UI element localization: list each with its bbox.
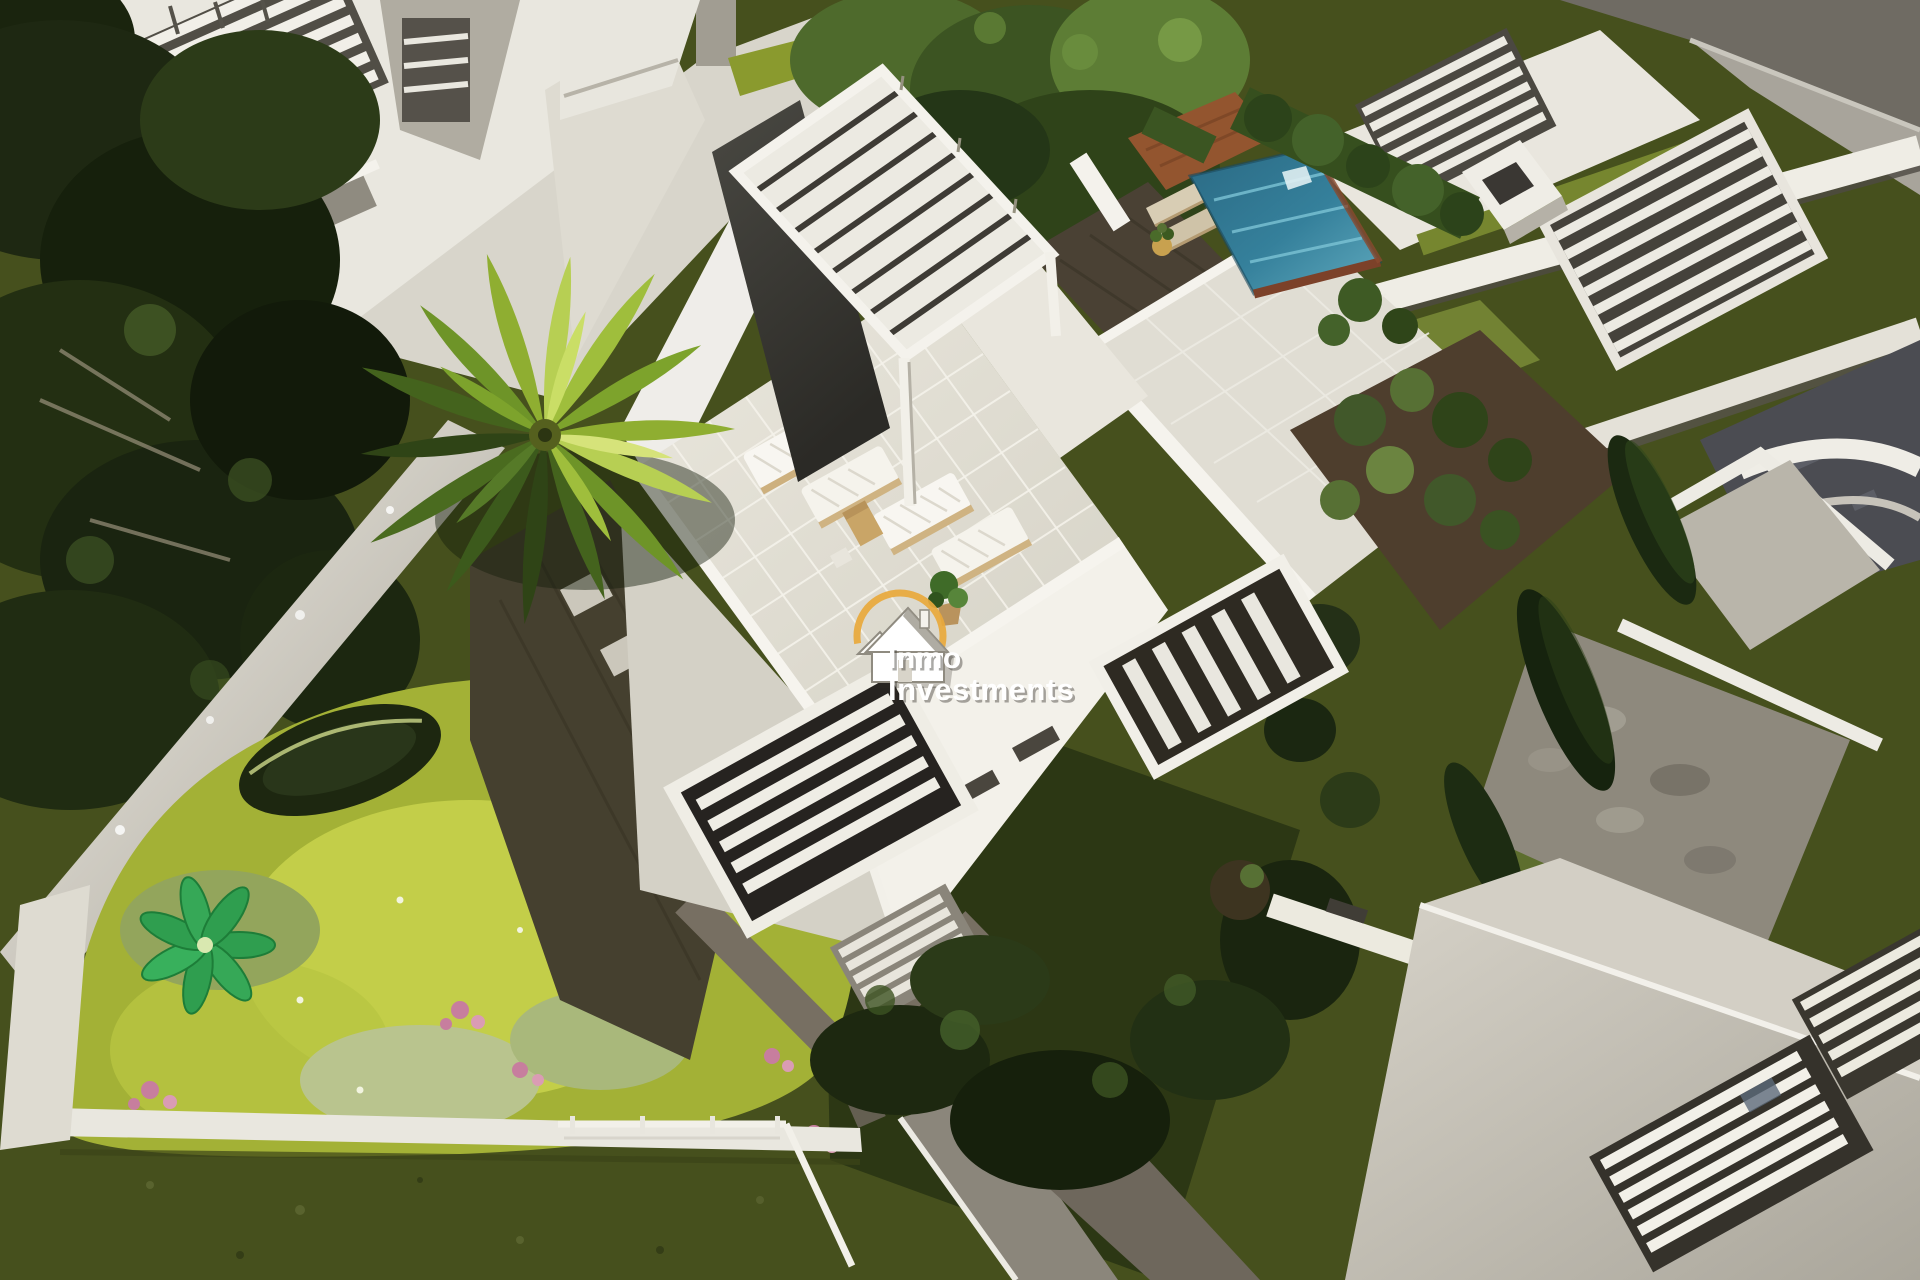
- watermark-text-line1: Inmo: [888, 642, 962, 675]
- pergola-post-right: [1050, 252, 1056, 336]
- villa-aerial-render: Inmo Inmo Investments Investments: [0, 0, 1920, 1280]
- left-forest-trees: [0, 0, 420, 810]
- watermark-text-line2: Investments: [888, 672, 1074, 707]
